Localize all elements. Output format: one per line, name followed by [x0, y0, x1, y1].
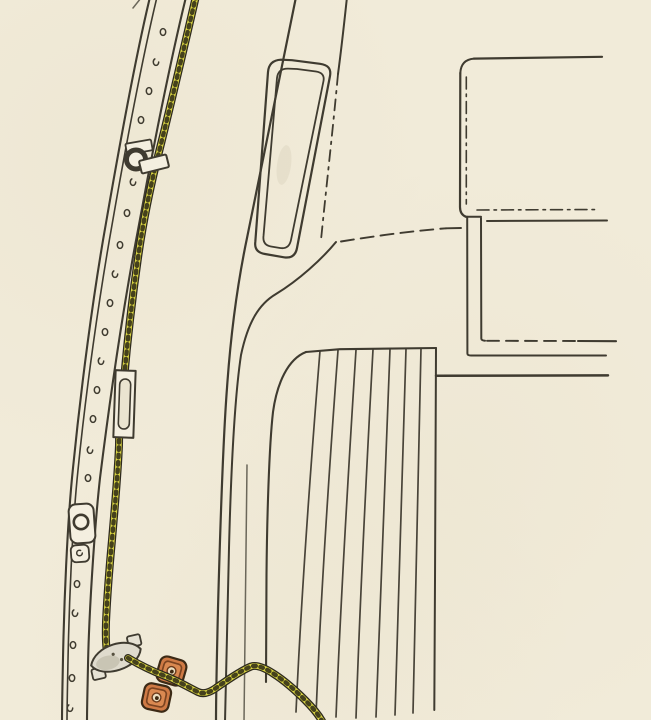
grille-slat-line [395, 349, 406, 715]
track-hole [85, 475, 90, 482]
track-hole [90, 416, 95, 423]
track-hole [70, 642, 75, 649]
grille-slat-line [376, 349, 390, 717]
grille-slat-line [336, 350, 356, 717]
window-top-edge [474, 57, 602, 59]
track-hole [102, 329, 107, 336]
track-hole [160, 29, 165, 36]
window-corner [460, 59, 474, 73]
grille-slats [296, 349, 421, 719]
grille-right-edge [434, 348, 436, 710]
track-hole [94, 387, 99, 394]
track-hole [74, 581, 79, 588]
grille-top-edge [306, 348, 436, 352]
slide-fitting-slot [118, 379, 131, 429]
pillar-centerline-solid [338, 0, 347, 74]
grille-slat-line [413, 349, 421, 714]
track-hole [124, 210, 129, 217]
stray-edge-mark [133, 0, 141, 8]
shoulder-dashed-line [341, 228, 446, 241]
anchor-plate-hole [74, 515, 88, 529]
track-hole [153, 59, 158, 66]
track-hole [138, 117, 143, 124]
grille-slat-line [296, 351, 320, 712]
track-hole [69, 675, 74, 682]
track-hole [130, 179, 135, 186]
window-left-edge [460, 73, 466, 217]
slot-pencil-shade [274, 144, 293, 186]
track-hole [146, 88, 151, 95]
track-hole [67, 705, 72, 712]
grille-slat-line [356, 350, 373, 718]
pillar-crease-line [244, 465, 247, 720]
track-hole [117, 242, 122, 249]
track-hole [107, 300, 112, 307]
anchor-plate-tab [70, 544, 89, 562]
track-hole [87, 447, 92, 454]
cable-upper-outline [106, 0, 196, 656]
cable-upper-twist-stripes [106, 0, 196, 656]
cable-upper-core [106, 0, 196, 656]
channel-left-wall-and-sill [467, 217, 606, 356]
illustration-canvas [0, 0, 651, 720]
window-bottom-edge [487, 221, 607, 222]
track-hole [112, 271, 117, 278]
window-centerline-horizontal [477, 210, 598, 211]
grille-slat-line [316, 350, 338, 715]
pillar-centerline-dashdot [321, 74, 338, 240]
clamp-block-lower [141, 682, 173, 713]
track-outer-doubling-line [67, 0, 157, 720]
channel-right-wall [481, 218, 485, 341]
paper-background [0, 0, 651, 720]
track-hole [72, 610, 77, 617]
clamp-fitting [86, 634, 147, 680]
track-hole [98, 358, 103, 365]
